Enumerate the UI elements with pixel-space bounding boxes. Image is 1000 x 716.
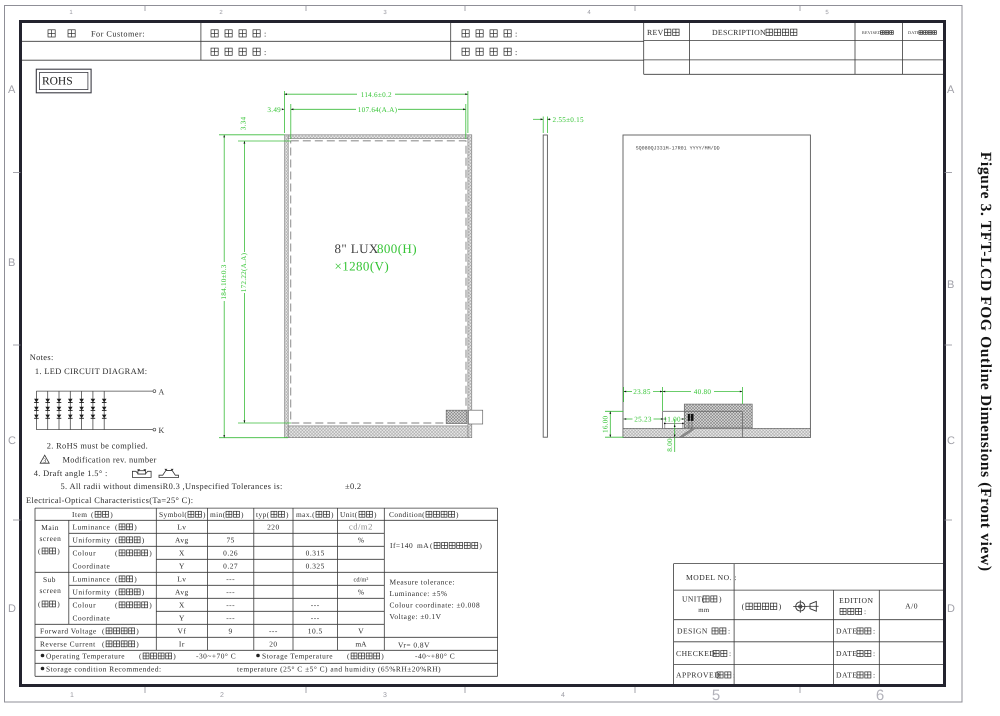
svg-text:3.34: 3.34 [239,117,247,131]
svg-text:(: ( [115,522,118,531]
svg-text:(: ( [91,510,94,519]
svg-text:23.85: 23.85 [633,388,651,396]
svg-text:25.23: 25.23 [634,416,652,424]
svg-text:EDITION: EDITION [839,596,873,605]
svg-text:): ) [142,587,145,596]
svg-text:(: ( [115,600,118,609]
svg-text:CHECKED: CHECKED [676,649,715,658]
svg-text:Colour: Colour [73,548,97,557]
svg-text:A: A [947,84,955,96]
svg-text:Vf: Vf [177,626,186,635]
svg-text:5: 5 [712,687,720,704]
svg-text:-30~+70° C: -30~+70° C [196,652,236,661]
svg-text:typ(: typ( [256,510,270,519]
svg-text:): ) [57,600,60,609]
svg-text:---: --- [226,574,235,583]
svg-text:): ) [149,548,152,557]
svg-text:107.64(A.A): 107.64(A.A) [358,106,398,114]
svg-text:Electrical-Optical Characteris: Electrical-Optical Characteristics(Ta=25… [26,496,193,505]
svg-text:114.6±0.2: 114.6±0.2 [361,91,392,99]
svg-text:%: % [358,587,364,596]
svg-text:X: X [179,600,185,609]
svg-text:Condition(: Condition( [389,510,425,519]
svg-text:B: B [8,257,15,269]
svg-text:(: ( [38,547,41,556]
svg-text:cd/m²: cd/m² [354,576,369,583]
svg-text:16.00: 16.00 [601,415,609,433]
svg-text:UNIT(: UNIT( [682,595,705,604]
svg-text:8" LUX: 8" LUX [335,241,379,256]
svg-text:3: 3 [43,458,46,464]
svg-text:75: 75 [226,535,234,544]
svg-text::: : [873,649,875,658]
svg-text:): ) [479,541,482,550]
svg-text:2. RoHS must be complied.: 2. RoHS must be complied. [47,442,148,451]
svg-text::: : [729,649,731,658]
svg-text:---: --- [226,613,235,622]
svg-text:temperature (25° C ±5° C) and: temperature (25° C ±5° C) and humidity (… [237,665,441,674]
svg-text:(: ( [102,626,105,635]
svg-text:(: ( [115,535,118,544]
svg-text:(: ( [742,602,745,611]
svg-text:Colour coordinate: ±0.008: Colour coordinate: ±0.008 [390,601,481,610]
svg-text:Unit(: Unit( [340,510,358,519]
svg-text:40.80: 40.80 [694,388,712,396]
svg-text:Coordinate: Coordinate [73,561,111,570]
svg-text:---: --- [311,613,320,622]
svg-text:ROHS: ROHS [42,76,73,88]
svg-text:(: ( [115,574,118,583]
svg-text:---: --- [311,600,320,609]
svg-text:Figure 3. TFT-LCD FOG Outline: Figure 3. TFT-LCD FOG Outline Dimensions… [977,152,994,572]
svg-text:Colour: Colour [73,600,97,609]
svg-text:0.325: 0.325 [306,561,325,570]
svg-text:): ) [134,522,137,531]
svg-text::: : [515,48,517,57]
svg-text:Reverse Current: Reverse Current [40,639,96,648]
svg-text:800(H): 800(H) [377,241,417,256]
svg-text:Item: Item [72,510,88,519]
svg-text:9: 9 [229,626,233,635]
svg-text:Uniformity: Uniformity [73,535,111,544]
svg-text:5. All radii without dimensiR0: 5. All radii without dimensiR0.3 ,Unspec… [61,482,283,491]
svg-text:D: D [8,603,16,615]
svg-text:(: ( [139,652,142,661]
svg-text:Voltage: ±0.1V: Voltage: ±0.1V [390,612,442,621]
svg-text:If=140: If=140 [390,541,413,550]
svg-text::: : [515,30,517,39]
svg-text:APPROVED: APPROVED [676,671,720,680]
svg-text:11.00: 11.00 [664,416,681,424]
svg-text:184.10±0.3: 184.10±0.3 [220,264,228,299]
svg-text:DESCRIPTION: DESCRIPTION [712,28,766,37]
svg-text::: : [873,627,875,636]
svg-text:mA: mA [417,541,429,550]
svg-text::: : [264,30,266,39]
svg-text:Uniformity: Uniformity [73,587,111,596]
svg-text:Lv: Lv [177,522,186,531]
svg-text:): ) [110,510,113,519]
svg-text:%: % [358,535,364,544]
svg-text:1. LED CIRCUIT DIAGRAM:: 1. LED CIRCUIT DIAGRAM: [35,367,148,376]
svg-text:20: 20 [269,639,277,648]
svg-text:3: 3 [383,692,387,699]
svg-text:DATE: DATE [836,649,857,658]
svg-text:B: B [947,279,954,291]
svg-text:): ) [134,574,137,583]
svg-text:): ) [57,547,60,556]
svg-text:REV: REV [647,28,664,37]
svg-text:MODEL NO. :: MODEL NO. : [686,573,737,582]
svg-text:D: D [947,603,955,615]
svg-text:DATE: DATE [908,30,920,35]
svg-text:6: 6 [876,687,884,704]
svg-text:3.49: 3.49 [267,106,281,114]
svg-text:172.22(A.A): 172.22(A.A) [240,252,248,292]
svg-text:A/0: A/0 [905,602,918,611]
svg-text:Avg: Avg [175,587,189,596]
svg-text::: : [728,627,730,636]
svg-text:(: ( [430,541,433,550]
svg-text:C: C [947,435,955,447]
svg-text:): ) [149,600,152,609]
svg-text:Luminance: Luminance [73,522,111,531]
svg-text:Lv: Lv [177,574,186,583]
svg-text:0.26: 0.26 [223,548,238,557]
svg-text:DESIGN: DESIGN [677,627,708,636]
svg-text:(: ( [38,600,41,609]
svg-text:min(: min( [210,510,226,519]
svg-text:Modification rev. number: Modification rev. number [63,456,157,465]
svg-text:): ) [136,639,139,648]
svg-text:---: --- [226,600,235,609]
svg-text:Y: Y [179,613,185,622]
svg-text:---: --- [269,626,278,635]
svg-text:DATE: DATE [836,671,857,680]
svg-text:2.55±0.15: 2.55±0.15 [553,116,585,124]
svg-text:V: V [358,626,364,635]
svg-text:cd/m2: cd/m2 [349,521,373,531]
svg-text:Storage Temperature: Storage Temperature [262,652,333,661]
svg-text:0.315: 0.315 [306,548,325,557]
svg-text:A: A [159,387,165,396]
svg-text:For Customer:: For Customer: [91,30,145,39]
svg-text:SQ080QJ331M-17R01 YYYY/MM/D: SQ080QJ331M-17R01 YYYY/MM/DD [636,146,720,152]
svg-text:8.00: 8.00 [666,438,674,452]
svg-text:10.5: 10.5 [308,626,323,635]
svg-text:): ) [173,652,176,661]
svg-text:A: A [8,84,16,96]
svg-text:1: 1 [70,692,74,699]
svg-text:Avg: Avg [175,535,189,544]
svg-text:Measure tolerance:: Measure tolerance: [390,578,455,587]
svg-text:Sub: Sub [43,575,56,584]
svg-text:Luminance: Luminance [73,574,111,583]
svg-text:×1280(V): ×1280(V) [335,259,390,274]
svg-text:Luminance: ±5%: Luminance: ±5% [390,589,448,598]
svg-text:): ) [136,626,139,635]
svg-text:Ir: Ir [179,639,185,648]
svg-text:Symbol(: Symbol( [159,510,187,519]
svg-text:screen: screen [40,534,62,543]
svg-text:±0.2: ±0.2 [345,482,361,491]
svg-text:REVISED: REVISED [862,30,881,35]
svg-text:(: ( [115,587,118,596]
svg-text::: : [264,48,266,57]
svg-text:Coordinate: Coordinate [73,613,111,622]
svg-text::: : [873,671,875,680]
svg-text:-40~+80° C: -40~+80° C [415,652,455,661]
svg-text:): ) [381,652,384,661]
svg-text:220: 220 [267,522,280,531]
svg-text:C: C [8,435,16,447]
svg-text:max.(: max.( [296,510,315,519]
svg-text:---: --- [226,587,235,596]
svg-text:Vr= 0.8V: Vr= 0.8V [398,641,430,650]
svg-text:(: ( [347,652,350,661]
svg-text::: : [733,671,735,680]
svg-text:): ) [779,602,782,611]
svg-text:Forward Voltage: Forward Voltage [40,626,97,635]
svg-text:4: 4 [561,692,565,699]
svg-text:Notes:: Notes: [30,353,54,362]
svg-text:DATE: DATE [836,627,857,636]
svg-text:mm: mm [698,607,710,614]
svg-text:(: ( [115,548,118,557]
svg-text:(: ( [102,639,105,648]
svg-text:K: K [159,426,165,435]
svg-text:Main: Main [41,523,59,532]
svg-text:0.27: 0.27 [223,561,238,570]
svg-text:4. Draft angle 1.5° :: 4. Draft angle 1.5° : [34,469,108,478]
svg-text:Y: Y [179,561,185,570]
svg-text:X: X [179,548,185,557]
svg-text:): ) [142,535,145,544]
svg-text:mA: mA [355,639,367,648]
svg-text:2: 2 [220,692,224,699]
svg-text:screen: screen [40,586,62,595]
svg-text:Storage condition Recommended:: Storage condition Recommended: [46,665,162,674]
svg-text:Operating Temperature: Operating Temperature [46,652,125,661]
svg-text::: : [864,607,866,616]
